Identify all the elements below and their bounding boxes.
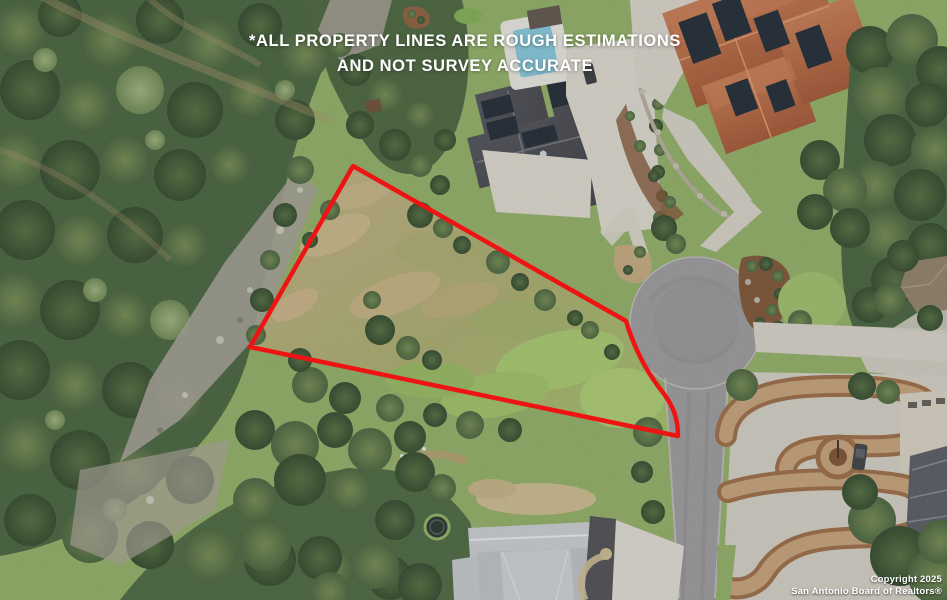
aerial-photo-stage: *ALL PROPERTY LINES ARE ROUGH ESTIMATION… xyxy=(0,0,947,600)
disclaimer-text: *ALL PROPERTY LINES ARE ROUGH ESTIMATION… xyxy=(249,29,681,79)
disclaimer-line-1: *ALL PROPERTY LINES ARE ROUGH ESTIMATION… xyxy=(249,29,681,54)
copyright-line-2: San Antonio Board of Realtors® xyxy=(791,586,942,598)
disclaimer-line-2: AND NOT SURVEY ACCURATE xyxy=(249,54,681,79)
copyright-text: Copyright 2025 San Antonio Board of Real… xyxy=(791,574,942,597)
aerial-photo xyxy=(0,0,947,600)
copyright-line-1: Copyright 2025 xyxy=(791,574,942,586)
